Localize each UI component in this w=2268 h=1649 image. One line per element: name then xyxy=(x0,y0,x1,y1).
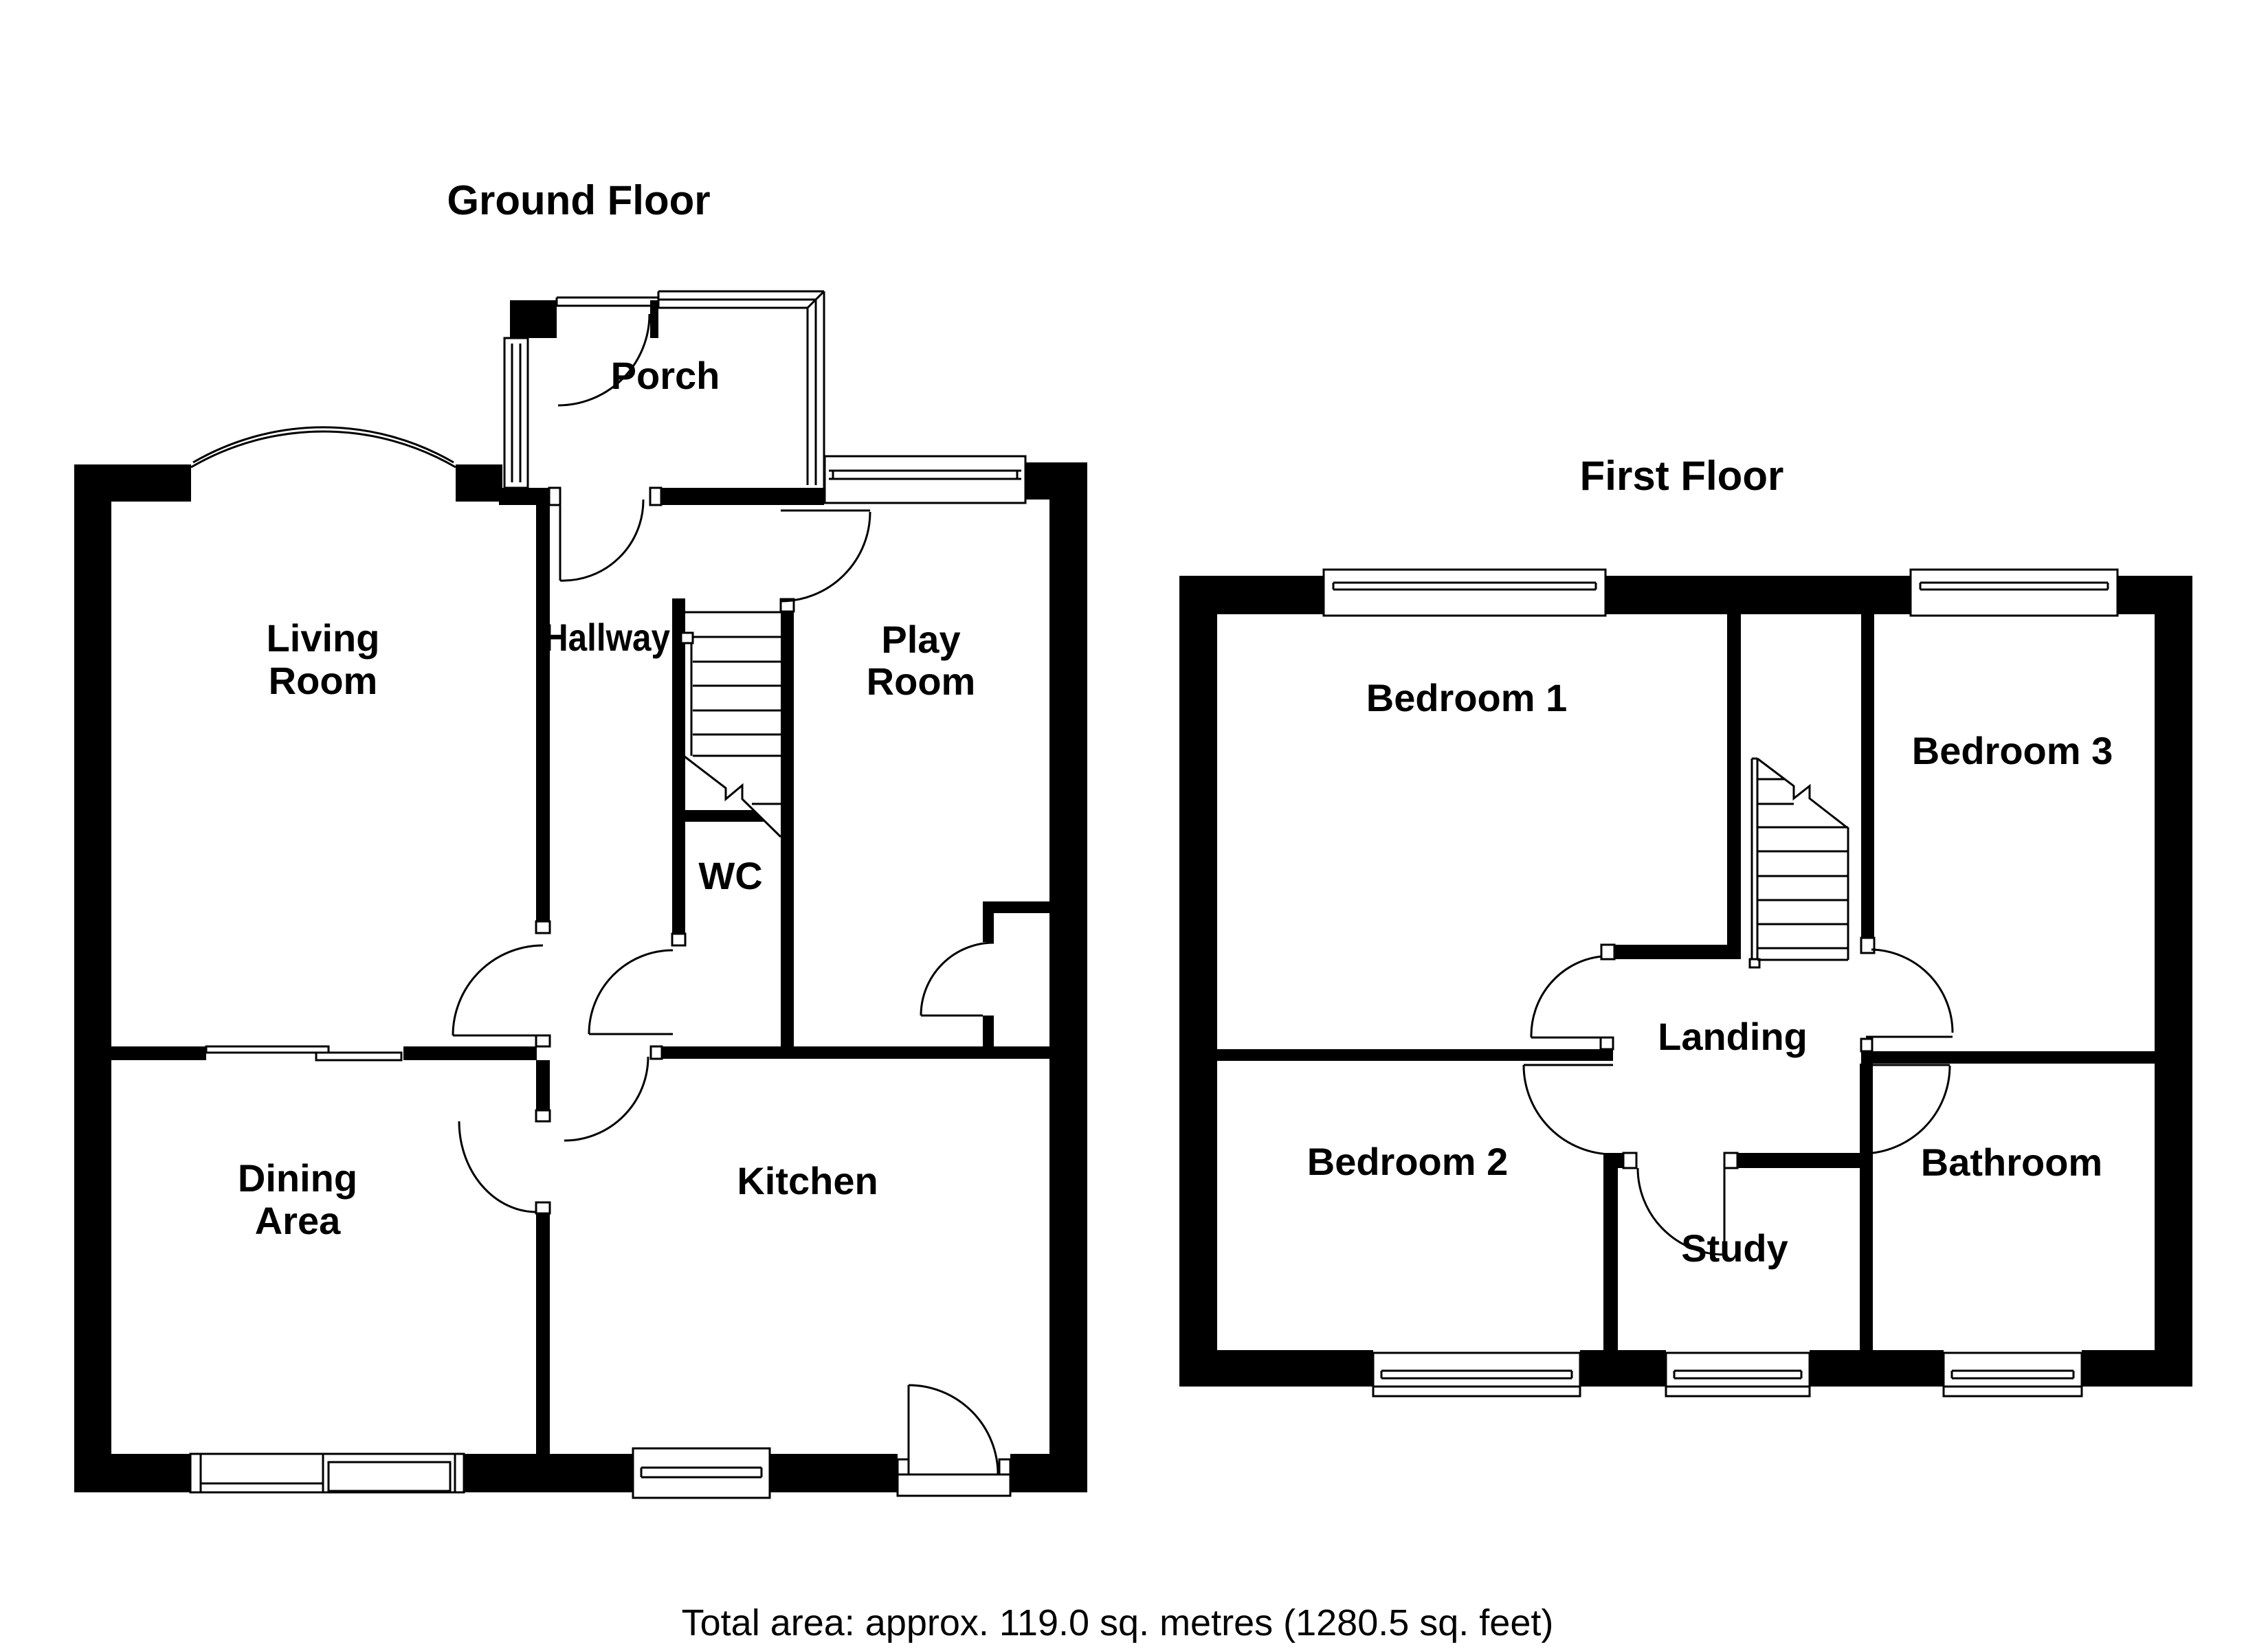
svg-text:Room: Room xyxy=(867,660,976,703)
svg-text:Study: Study xyxy=(1681,1226,1788,1270)
svg-text:Bedroom 2: Bedroom 2 xyxy=(1307,1140,1509,1183)
svg-text:Hallway: Hallway xyxy=(544,616,670,659)
svg-text:Dining: Dining xyxy=(238,1156,357,1200)
svg-text:First Floor: First Floor xyxy=(1580,453,1784,499)
svg-text:Landing: Landing xyxy=(1658,1015,1808,1058)
svg-text:Room: Room xyxy=(269,659,378,702)
svg-text:Living: Living xyxy=(267,616,380,660)
svg-text:Kitchen: Kitchen xyxy=(737,1159,878,1202)
svg-text:Porch: Porch xyxy=(611,354,720,397)
svg-text:Ground Floor: Ground Floor xyxy=(447,177,710,223)
svg-text:Bedroom 3: Bedroom 3 xyxy=(1912,729,2113,772)
svg-text:Total area: approx. 119.0 sq.: Total area: approx. 119.0 sq. metres (12… xyxy=(682,1602,1554,1644)
svg-text:Play: Play xyxy=(881,618,960,661)
svg-text:Bedroom 1: Bedroom 1 xyxy=(1366,676,1568,719)
svg-text:Area: Area xyxy=(255,1199,341,1242)
svg-text:WC: WC xyxy=(698,854,762,897)
svg-text:Bathroom: Bathroom xyxy=(1921,1141,2102,1184)
